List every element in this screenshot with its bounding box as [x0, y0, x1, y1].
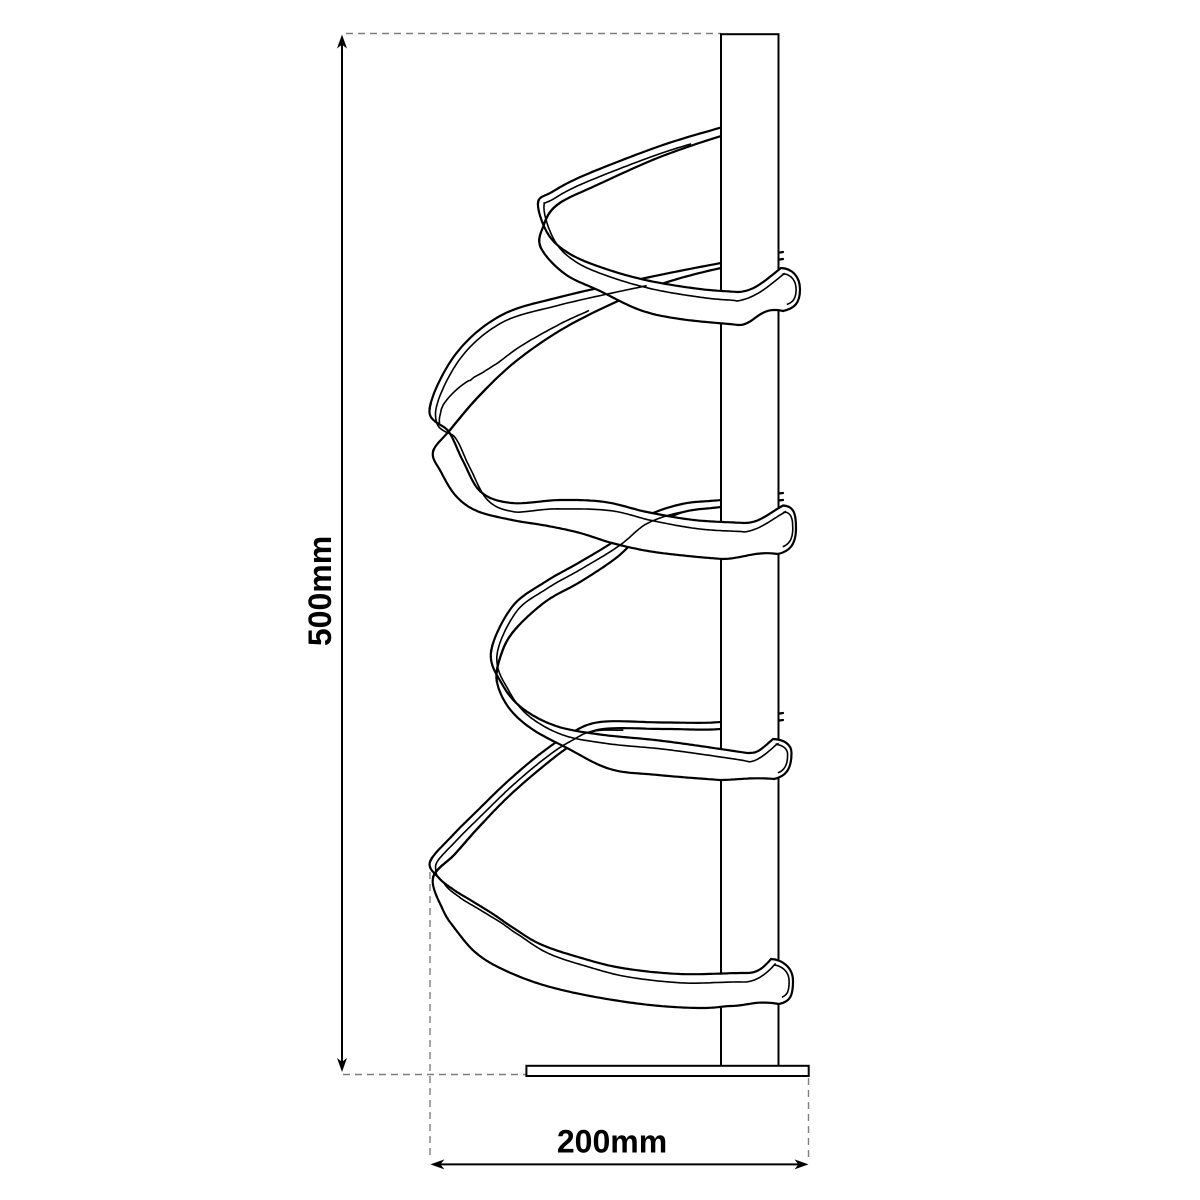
svg-text:500mm: 500mm: [302, 536, 338, 646]
svg-text:200mm: 200mm: [557, 1124, 667, 1160]
